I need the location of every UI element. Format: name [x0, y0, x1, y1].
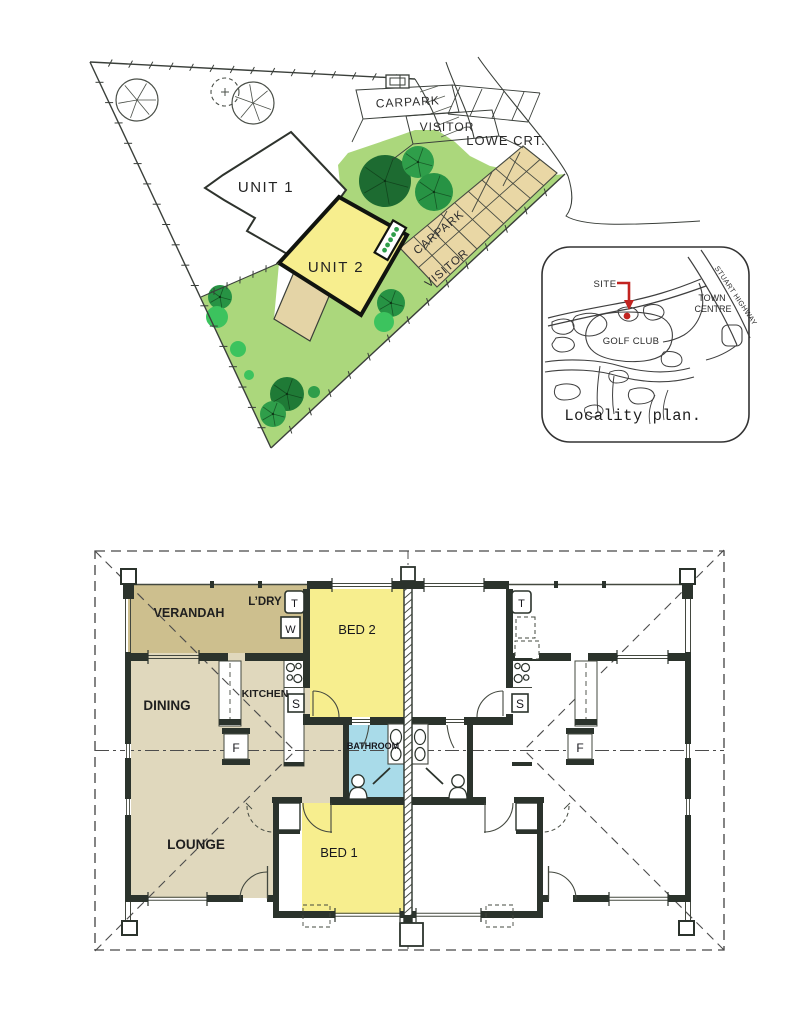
svg-text:S: S — [292, 697, 300, 711]
svg-text:T: T — [291, 598, 298, 610]
svg-text:DINING: DINING — [143, 698, 190, 713]
svg-text:Locality plan.: Locality plan. — [564, 407, 701, 425]
svg-text:UNIT 1: UNIT 1 — [238, 179, 294, 196]
svg-text:CARPARK: CARPARK — [375, 93, 440, 110]
svg-text:CENTRE: CENTRE — [694, 304, 731, 314]
svg-text:S: S — [516, 697, 524, 711]
svg-text:F: F — [576, 741, 583, 755]
svg-text:UNIT 2: UNIT 2 — [308, 259, 364, 276]
svg-text:TOWN: TOWN — [698, 293, 725, 303]
svg-text:GOLF CLUB: GOLF CLUB — [603, 336, 660, 347]
svg-text:LOUNGE: LOUNGE — [167, 837, 225, 852]
svg-text:VISITOR: VISITOR — [420, 120, 475, 134]
svg-text:KITCHEN: KITCHEN — [242, 688, 289, 700]
svg-text:SITE: SITE — [593, 279, 616, 290]
svg-text:T: T — [518, 598, 525, 610]
svg-text:BED 2: BED 2 — [338, 622, 376, 637]
svg-text:LOWE CRT.: LOWE CRT. — [466, 133, 546, 148]
svg-text:W: W — [285, 624, 296, 636]
svg-text:F: F — [232, 741, 239, 755]
svg-text:VERANDAH: VERANDAH — [154, 606, 225, 620]
svg-text:L’DRY: L’DRY — [248, 596, 282, 608]
svg-text:BED 1: BED 1 — [320, 845, 358, 860]
svg-text:BATHROOM: BATHROOM — [347, 741, 399, 751]
